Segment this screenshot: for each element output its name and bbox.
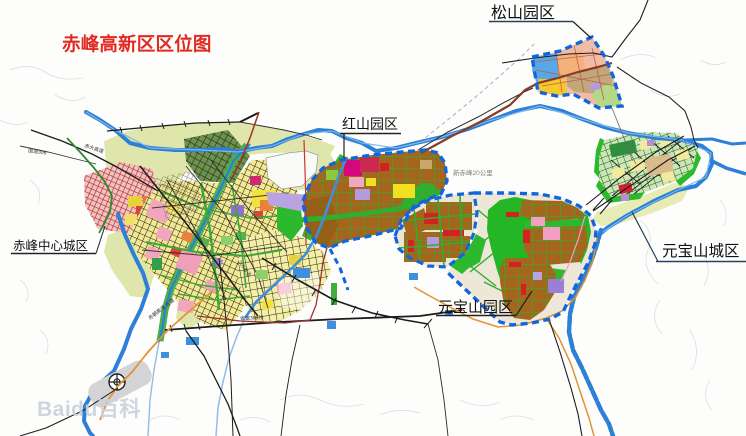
svg-text:松山园区: 松山园区 (491, 4, 555, 22)
svg-text:省道306线: 省道306线 (240, 314, 264, 322)
svg-text:元宝山园区: 元宝山园区 (438, 299, 513, 316)
svg-text:新赤峰20公里: 新赤峰20公里 (453, 168, 493, 177)
svg-text:元宝山城区: 元宝山城区 (662, 242, 740, 260)
svg-text:赤峰中心城区: 赤峰中心城区 (13, 238, 88, 253)
svg-text:赤峰高新区区位图: 赤峰高新区区位图 (62, 34, 212, 56)
svg-text:红山园区: 红山园区 (342, 117, 398, 133)
svg-text:Baidu百科: Baidu百科 (37, 397, 141, 421)
